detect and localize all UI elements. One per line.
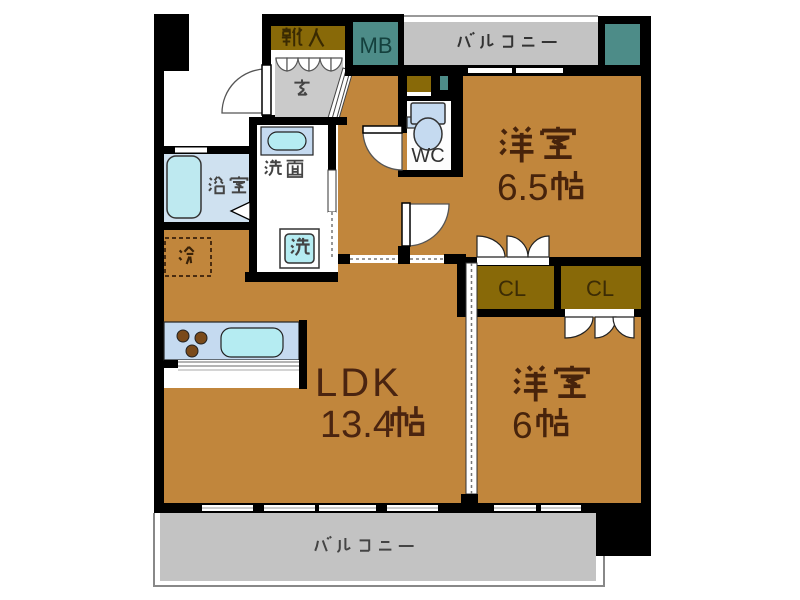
svg-text:CL: CL <box>498 276 526 301</box>
svg-text:LDK: LDK <box>315 361 402 405</box>
svg-text:WC: WC <box>411 145 444 167</box>
svg-text:6: 6 <box>512 405 533 446</box>
svg-text:13.4: 13.4 <box>320 404 394 446</box>
svg-text:6.5: 6.5 <box>497 167 548 208</box>
svg-text:CL: CL <box>586 276 614 301</box>
svg-text:MB: MB <box>360 33 393 58</box>
